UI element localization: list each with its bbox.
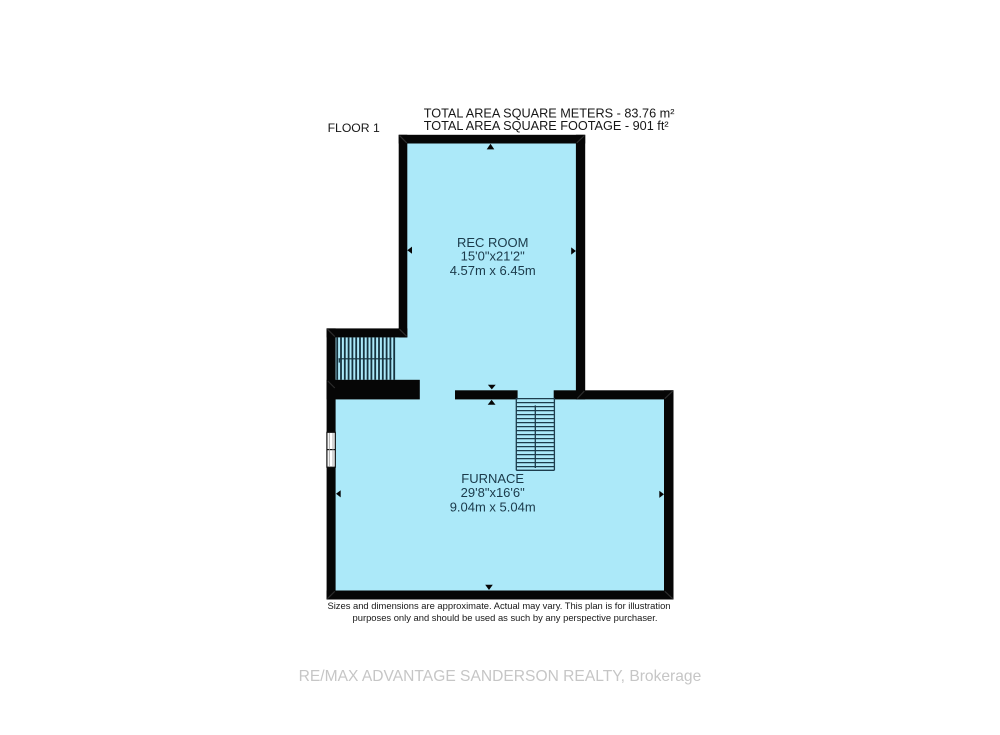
svg-text:TOTAL AREA SQUARE FOOTAGE - 90: TOTAL AREA SQUARE FOOTAGE - 901 ft² <box>424 119 669 133</box>
svg-text:29'8"x16'6": 29'8"x16'6" <box>461 485 525 500</box>
svg-text:REC ROOM: REC ROOM <box>457 235 529 250</box>
svg-text:Sizes and dimensions are appro: Sizes and dimensions are approximate. Ac… <box>327 600 670 611</box>
svg-text:FURNACE: FURNACE <box>461 471 524 486</box>
svg-text:purposes only and should be us: purposes only and should be used as such… <box>353 612 658 623</box>
svg-text:FLOOR 1: FLOOR 1 <box>328 121 380 135</box>
svg-text:9.04m x 5.04m: 9.04m x 5.04m <box>450 499 536 514</box>
svg-text:RE/MAX ADVANTAGE SANDERSON REA: RE/MAX ADVANTAGE SANDERSON REALTY, Broke… <box>299 668 702 685</box>
svg-text:15'0"x21'2": 15'0"x21'2" <box>461 249 525 264</box>
svg-text:4.57m x 6.45m: 4.57m x 6.45m <box>450 263 536 278</box>
